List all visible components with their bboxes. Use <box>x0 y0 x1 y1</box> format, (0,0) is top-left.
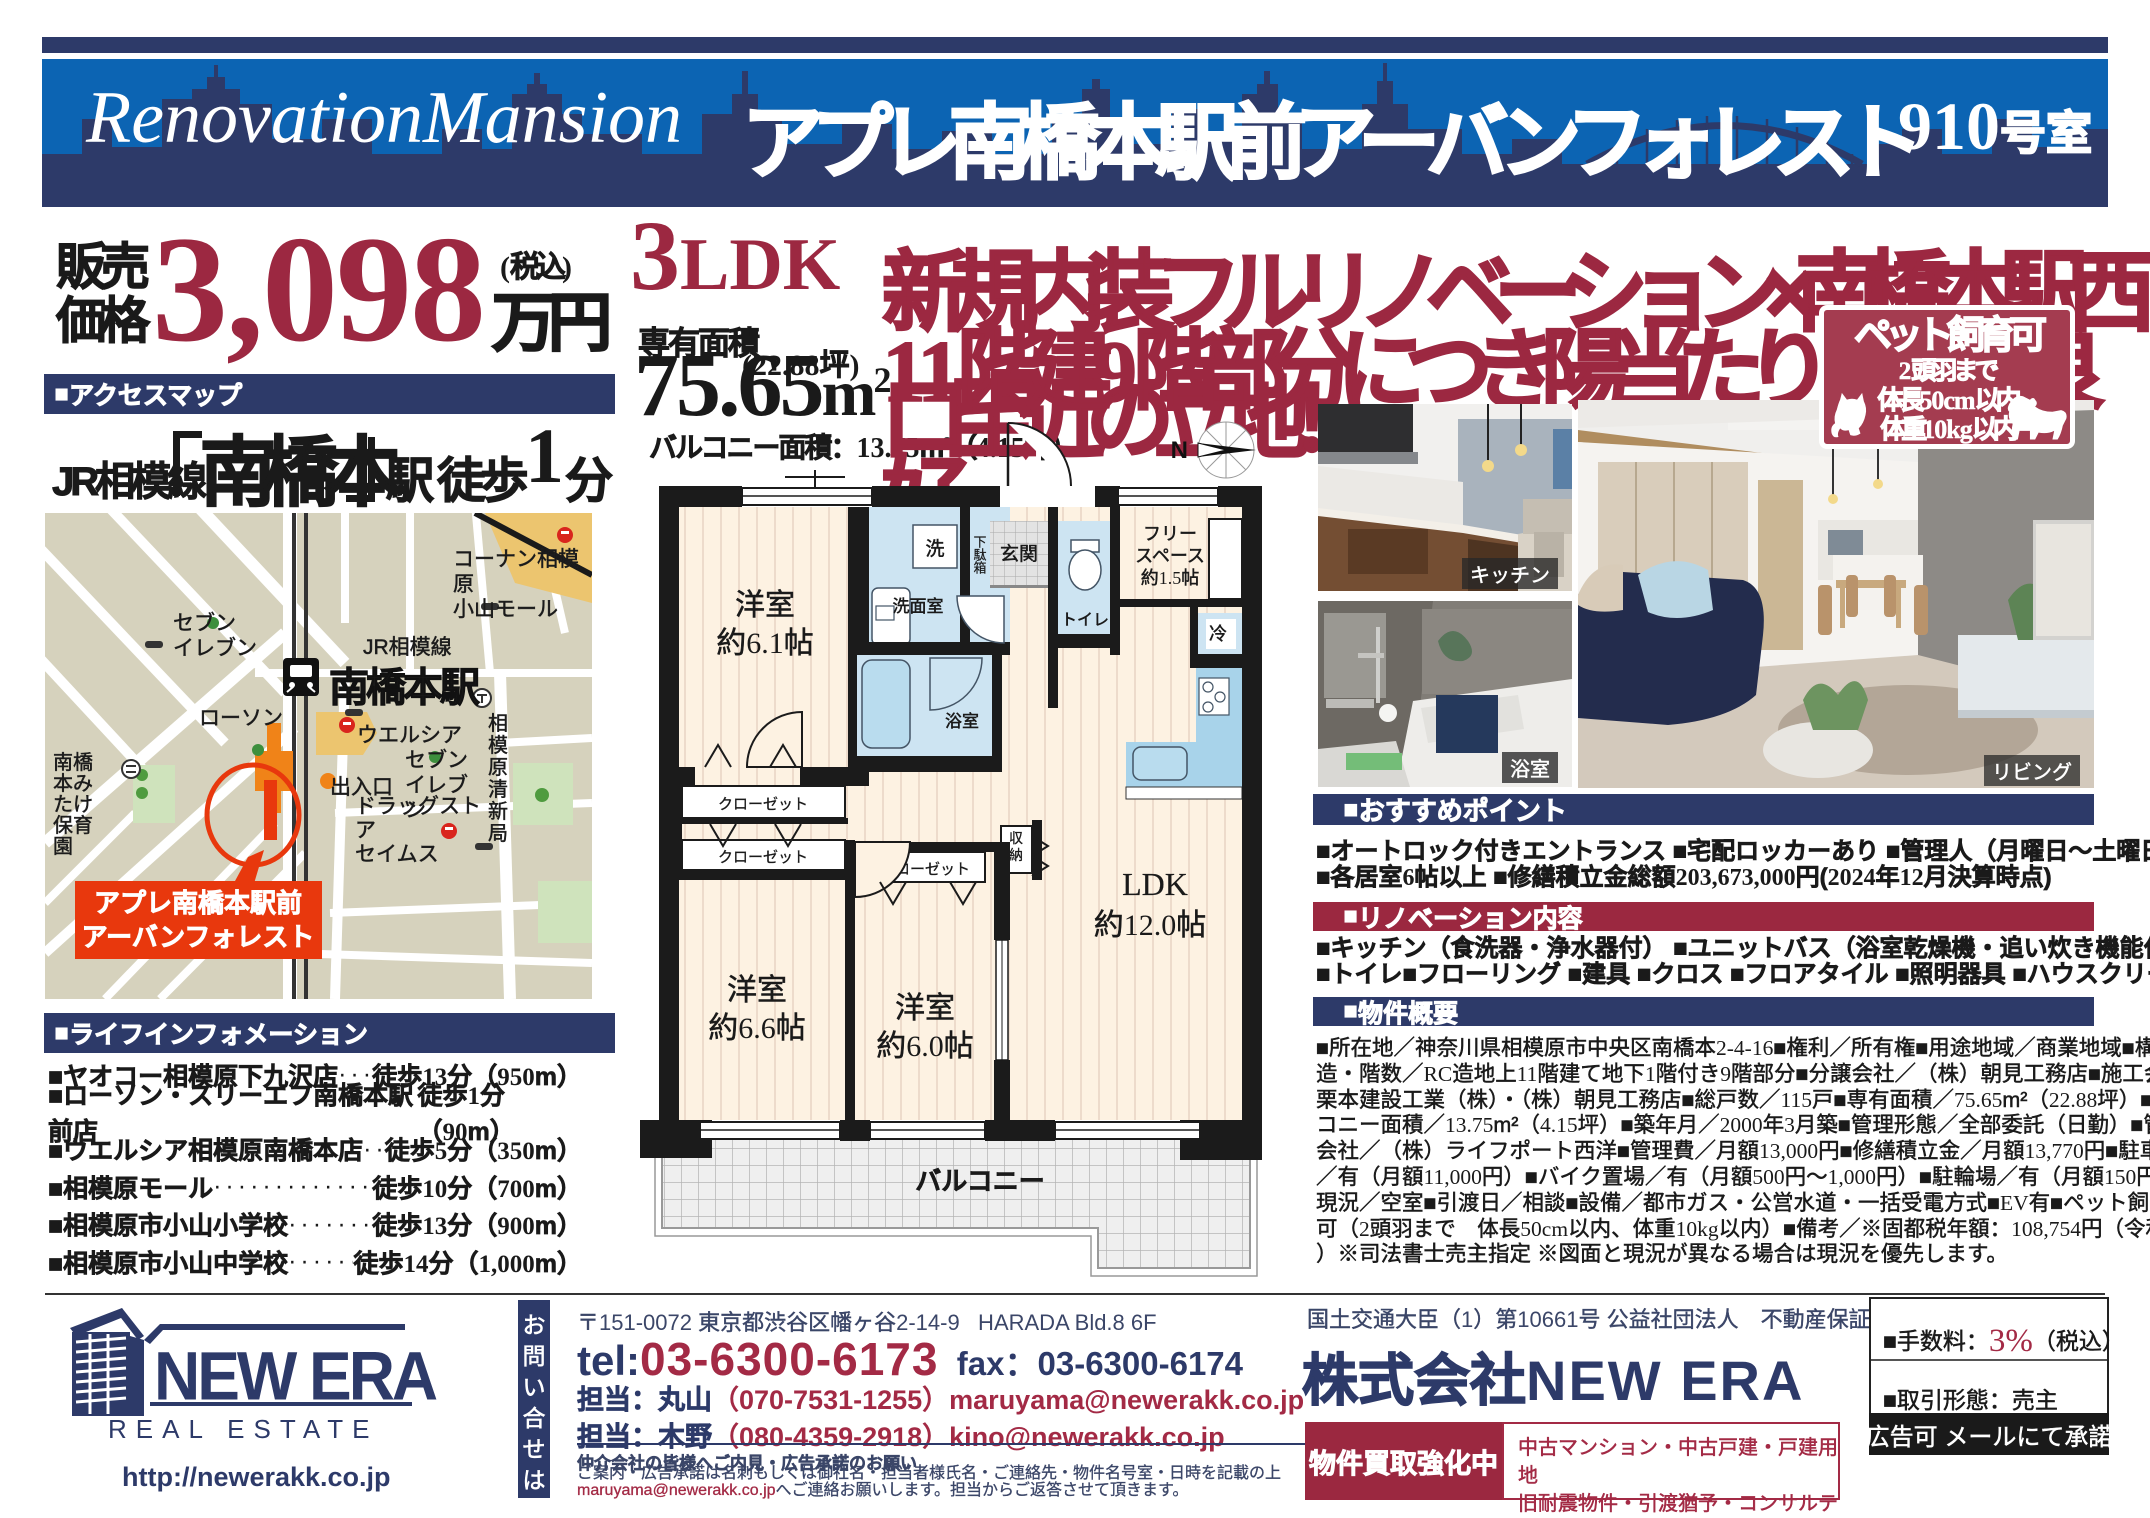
svg-text:約12.0帖: 約12.0帖 <box>1094 909 1207 942</box>
svg-text:納: 納 <box>1009 847 1023 863</box>
svg-text:トイレ: トイレ <box>1061 612 1109 629</box>
svg-text:http://newerakk.co.jp: http://newerakk.co.jp <box>122 1462 391 1492</box>
svg-text:玄関: 玄関 <box>1000 543 1038 565</box>
svg-text:アプレ南橋本駅前: アプレ南橋本駅前 <box>94 888 302 918</box>
svg-text:洋室: 洋室 <box>895 992 955 1025</box>
svg-text:冷: 冷 <box>1209 624 1227 644</box>
svg-text:洋室: 洋室 <box>727 974 787 1007</box>
svg-text:LDK: LDK <box>1122 866 1188 902</box>
svg-text:クローゼット: クローゼット <box>718 849 808 866</box>
svg-text:約6.1帖: 約6.1帖 <box>716 627 814 660</box>
svg-text:約6.0帖: 約6.0帖 <box>876 1030 974 1063</box>
svg-text:スペース: スペース <box>1135 546 1205 566</box>
svg-text:洗面室: 洗面室 <box>893 597 944 616</box>
svg-text:N: N <box>1171 437 1188 464</box>
svg-text:収: 収 <box>1009 830 1023 846</box>
svg-text:フリー: フリー <box>1143 524 1197 544</box>
svg-text:アーバンフォレスト: アーバンフォレスト <box>82 922 315 952</box>
svg-text:洋室: 洋室 <box>735 589 795 622</box>
svg-text:バルコニー: バルコニー <box>915 1166 1044 1196</box>
svg-text:クローゼット: クローゼット <box>718 796 808 813</box>
svg-text:REAL ESTATE: REAL ESTATE <box>108 1414 378 1444</box>
svg-text:約1.5帖: 約1.5帖 <box>1141 568 1200 588</box>
svg-text:約6.6帖: 約6.6帖 <box>708 1012 806 1045</box>
svg-text:洗: 洗 <box>925 538 944 560</box>
svg-text:下駄箱: 下駄箱 <box>972 535 987 574</box>
svg-text:NEW ERA: NEW ERA <box>154 1338 437 1415</box>
svg-text:浴室: 浴室 <box>945 712 979 731</box>
